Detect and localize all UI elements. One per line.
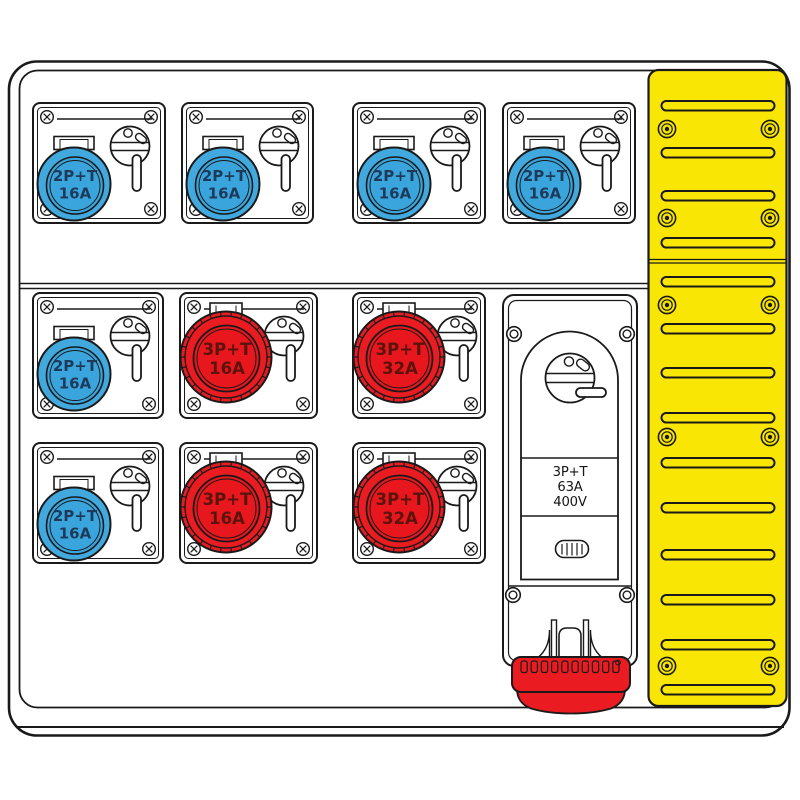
screw-icon	[465, 451, 478, 464]
screw-icon	[507, 327, 522, 342]
screw-icon	[620, 588, 635, 603]
switch-lever	[460, 345, 469, 381]
screw-icon	[143, 398, 156, 411]
rating-label: 16A	[209, 509, 245, 528]
vent-slot	[662, 148, 775, 158]
screw-icon	[361, 451, 374, 464]
screw-icon	[188, 398, 201, 411]
screw-icon	[41, 451, 54, 464]
socket-unit-2ppt-16a: 2P+T16A	[33, 443, 163, 563]
switch-lever	[287, 345, 296, 381]
screw-icon	[361, 111, 374, 124]
screw-icon	[465, 111, 478, 124]
screw-icon	[41, 111, 54, 124]
main-rating-line2: 63A	[557, 480, 582, 495]
screw-icon	[658, 296, 675, 313]
screw-icon	[761, 209, 778, 226]
screw-icon	[361, 301, 374, 314]
screw-icon	[297, 301, 310, 314]
vent-slot	[662, 595, 775, 605]
screw-icon	[297, 543, 310, 556]
socket-unit-2ppt-16a: 2P+T16A	[33, 103, 165, 223]
screw-icon	[658, 209, 675, 226]
screw-icon	[143, 301, 156, 314]
vent-slot	[662, 191, 775, 201]
screw-icon	[506, 588, 521, 603]
switch-lever	[460, 495, 469, 531]
rating-label: 16A	[208, 185, 241, 203]
switch-lever	[133, 495, 142, 531]
screw-icon	[145, 111, 158, 124]
switch-lever	[133, 155, 142, 191]
switch-lever	[576, 388, 606, 397]
switch-lever	[603, 155, 612, 191]
screw-icon	[658, 120, 675, 137]
main-rating-line3: 400V	[553, 495, 587, 510]
screw-icon	[465, 543, 478, 556]
socket-unit-3ppt-32a: 3P+T32A	[353, 293, 485, 418]
rating-label: 2P+T	[523, 167, 568, 185]
switch-pin	[564, 357, 573, 366]
screw-icon	[297, 398, 310, 411]
screw-icon	[297, 451, 310, 464]
socket-unit-3ppt-32a: 3P+T32A	[353, 443, 485, 563]
rating-label: 32A	[382, 359, 418, 378]
rating-label: 16A	[529, 185, 562, 203]
socket-unit-2ppt-16a: 2P+T16A	[182, 103, 313, 223]
screw-icon	[188, 301, 201, 314]
rating-label: 2P+T	[53, 507, 98, 525]
distribution-board-drawing: 3P+T 63A 400V 2P+T	[0, 0, 800, 800]
vent-slot	[662, 368, 775, 378]
main-rating-line1: 3P+T	[553, 465, 589, 480]
socket-unit-2ppt-16a: 2P+T16A	[503, 103, 635, 223]
socket-unit-2ppt-16a: 2P+T16A	[353, 103, 485, 223]
rating-label: 16A	[59, 375, 92, 393]
vent-slot	[662, 413, 775, 423]
screw-icon	[293, 203, 306, 216]
screw-icon	[658, 428, 675, 445]
vent-slot	[662, 458, 775, 468]
screw-icon	[615, 111, 628, 124]
screw-icon	[658, 657, 675, 674]
vent-slot	[662, 550, 775, 560]
vent-slot	[662, 324, 775, 334]
screw-icon	[41, 301, 54, 314]
rating-label: 16A	[59, 525, 92, 543]
rating-label: 2P+T	[202, 167, 247, 185]
socket-63a-red-cap	[512, 657, 630, 714]
screw-icon	[361, 543, 374, 556]
rating-label: 3P+T	[376, 490, 425, 509]
vent-slot	[662, 238, 775, 248]
rating-label: 3P+T	[203, 490, 252, 509]
screw-icon	[145, 203, 158, 216]
screw-icon	[465, 203, 478, 216]
screw-icon	[761, 296, 778, 313]
screw-icon	[143, 451, 156, 464]
switch-lever	[453, 155, 462, 191]
rating-label: 2P+T	[53, 167, 98, 185]
screw-icon	[465, 301, 478, 314]
indicator-window	[556, 541, 589, 558]
vent-slot	[662, 101, 775, 111]
main-switch-module: 3P+T 63A 400V	[503, 295, 637, 714]
switch-lever	[287, 495, 296, 531]
screw-icon	[511, 111, 524, 124]
drawing-canvas: 3P+T 63A 400V 2P+T	[0, 0, 800, 800]
screw-icon	[465, 398, 478, 411]
screw-icon	[761, 428, 778, 445]
vent-slot	[662, 503, 775, 513]
duct-cover-body	[649, 70, 787, 706]
socket-unit-3ppt-16a: 3P+T16A	[180, 443, 317, 563]
screw-icon	[761, 657, 778, 674]
rating-label: 2P+T	[53, 357, 98, 375]
vent-slot	[662, 640, 775, 650]
switch-lever	[282, 155, 291, 191]
cable-duct-cover	[649, 70, 787, 706]
rating-label: 32A	[382, 509, 418, 528]
switch-lever	[133, 345, 142, 381]
rating-label: 3P+T	[203, 340, 252, 359]
rating-label: 3P+T	[376, 340, 425, 359]
vent-slot	[662, 277, 775, 287]
screw-icon	[188, 451, 201, 464]
screw-icon	[361, 398, 374, 411]
screw-icon	[188, 543, 201, 556]
screw-icon	[761, 120, 778, 137]
vent-slot	[662, 685, 775, 695]
socket-unit-3ppt-16a: 3P+T16A	[180, 293, 317, 418]
rating-label: 2P+T	[373, 167, 418, 185]
screw-icon	[615, 203, 628, 216]
screw-icon	[143, 543, 156, 556]
socket-unit-2ppt-16a: 2P+T16A	[33, 293, 163, 418]
screw-icon	[190, 111, 203, 124]
screw-icon	[620, 327, 635, 342]
rating-label: 16A	[209, 359, 245, 378]
rating-label: 16A	[59, 185, 92, 203]
screw-icon	[293, 111, 306, 124]
rating-label: 16A	[379, 185, 412, 203]
